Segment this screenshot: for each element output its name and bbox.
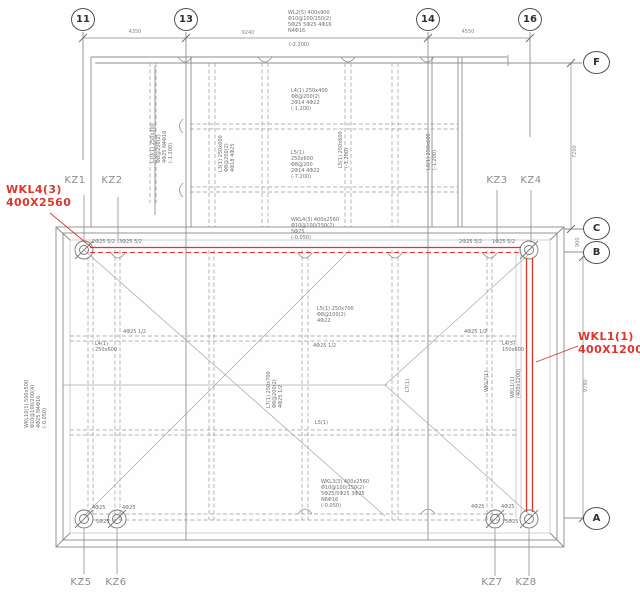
rebar-note: 4Φ25 <box>471 504 484 510</box>
grid-bubble-A: A <box>583 507 610 530</box>
column-label-kz3: KZ3 <box>482 175 512 186</box>
beam-note: L5(1) 250x700 Φ8@100(2) 4Φ22 <box>317 306 354 324</box>
column-label-kz5: KZ5 <box>66 577 96 588</box>
beam-note: WKL1(1) (400x1200) <box>510 369 522 398</box>
beam-note: WKL10(1) 500x500 Φ10@100/200(4) 4Φ25 N4Φ… <box>24 380 48 428</box>
grid-bubble-13: 13 <box>174 8 198 31</box>
rebar-note: 2Φ25 5/2 <box>92 239 115 245</box>
beam-note: L5(1) 250x600 (-1.200) <box>338 131 350 168</box>
grid-bubble-C: C <box>583 217 610 240</box>
column-label-kz6: KZ6 <box>101 577 131 588</box>
dim-right-3: 9780 <box>583 379 589 392</box>
beam-note: L3(1) 250x600 Φ8@200(2) 4Φ18 4Φ25 <box>218 135 236 172</box>
rebar-note: 2Φ25 5/2 <box>459 239 482 245</box>
structural-plan-drawing: 11 13 14 16 F C B A KZ1 KZ2 KZ3 KZ4 KZ5 … <box>0 0 640 599</box>
column-label-kz2: KZ2 <box>97 175 127 186</box>
beam-note: (-2.200) <box>289 42 309 48</box>
highlighted-beams <box>50 213 578 512</box>
rebar-note: 3Φ25 5/2 <box>119 239 142 245</box>
column-label-kz8: KZ8 <box>511 577 541 588</box>
column-label-kz7: KZ7 <box>477 577 507 588</box>
dim-right-2: 900 <box>575 237 581 247</box>
rebar-note: 4Φ25 <box>122 505 135 511</box>
beam-note: WL2(5) 400x900 Φ10@100/150(2) 5Φ25 5Φ25 … <box>288 10 332 34</box>
grid-bubble-F: F <box>583 51 610 74</box>
dim-right-1: 7200 <box>572 145 578 158</box>
callout-wkl1: WKL1(1) 400X1200 <box>578 330 640 356</box>
rebar-note: 4Φ25 <box>501 504 514 510</box>
grid-bubble-16: 16 <box>518 8 542 31</box>
beam-note: L4(1) 250x400 Φ8@200(2) 2Φ14 4Φ22 (-1.20… <box>291 88 328 112</box>
dim-top-1: 4350 <box>115 29 155 35</box>
rebar-note: 5Φ25 <box>505 519 518 525</box>
beam-note: 4Φ25 1/2 <box>313 343 336 349</box>
beam-note: WKL4(3) 400x2560 Φ10@100/150(2) 5Φ25 (-0… <box>291 217 339 241</box>
slab-diagonals <box>63 250 529 516</box>
beam-note: L10(1) 250x300 Φ8@200(2) 4Φ25 N4Φ16 (-1.… <box>150 123 174 163</box>
callout-wkl4: WKL4(3) 400X2560 <box>6 183 71 209</box>
frame-columns <box>75 241 538 528</box>
beam-note: WKL3(3) 400x2560 Φ10@100/150(2) 5Φ25/5Φ2… <box>321 479 369 509</box>
rebar-note: 4Φ25 <box>92 505 105 511</box>
beam-note: L4(5) 150x600 <box>502 341 524 353</box>
grid-bubble-11: 11 <box>71 8 95 31</box>
rebar-note: 4Φ25 1/2 <box>464 329 487 335</box>
beam-note: L7(1) 250x700 Φ8@200(2) 4Φ25 1/2 <box>266 371 284 408</box>
beam-note: L6(1) 250x600 (-1.200) <box>426 133 438 170</box>
beam-note: L4(1) 250x600 <box>95 341 117 353</box>
grid-bubble-14: 14 <box>416 8 440 31</box>
column-label-kz4: KZ4 <box>516 175 546 186</box>
beam-note: L5(1) <box>315 420 328 426</box>
beam-note: WKL7(1) <box>484 371 490 392</box>
grid-lines <box>83 32 584 540</box>
dim-top-2: 9240 <box>228 30 268 36</box>
beam-note: L7(1) <box>405 379 411 392</box>
beam-note: L5(1) 250x600 Φ8@200 2Φ14 4Φ22 (-7.200) <box>291 150 320 180</box>
dim-top-3: 4550 <box>448 29 488 35</box>
grid-bubble-B: B <box>583 241 610 264</box>
beam-note: 4Φ25 1/2 <box>123 329 146 335</box>
rebar-note: 1Φ25 5/2 <box>492 239 515 245</box>
rebar-note: 5Φ25 <box>96 519 109 525</box>
